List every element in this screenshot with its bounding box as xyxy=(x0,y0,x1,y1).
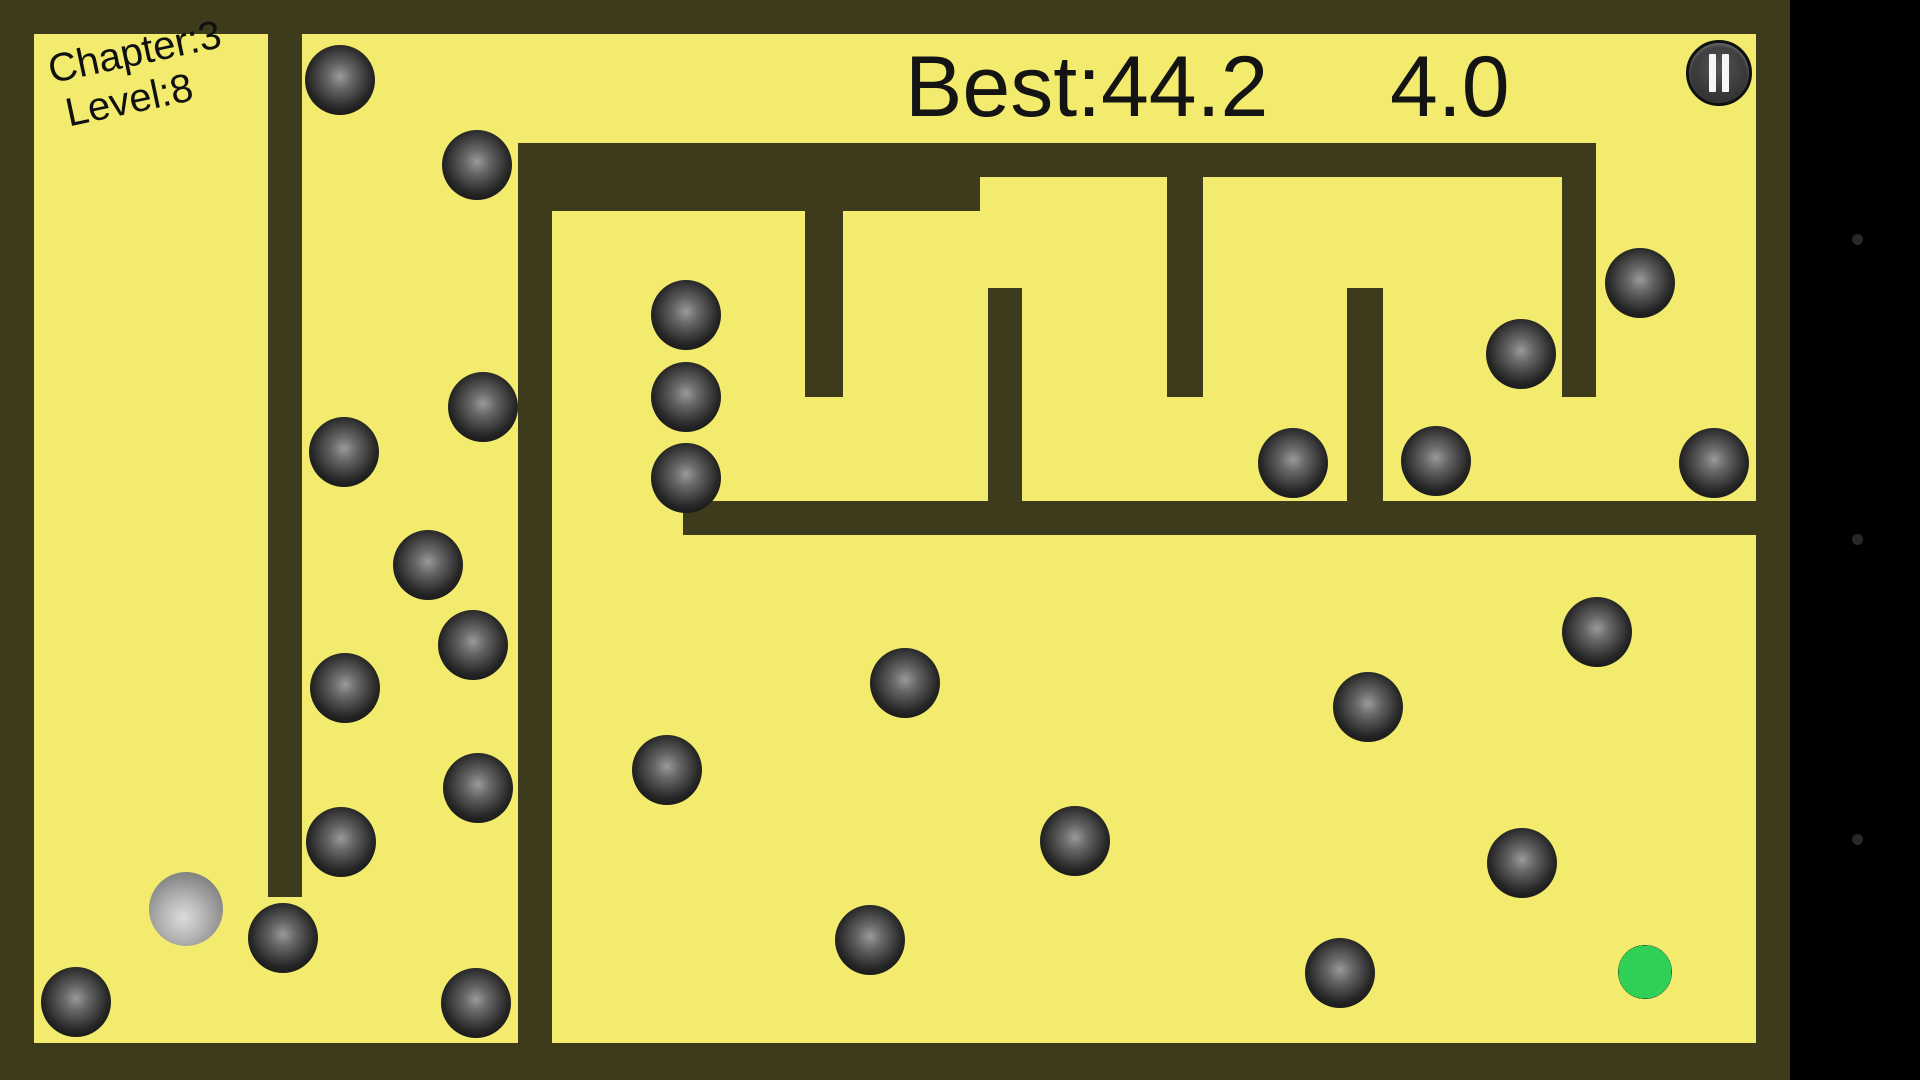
obstacle-ball xyxy=(442,130,512,200)
wall-top-horizontal xyxy=(518,143,1596,177)
obstacle-ball xyxy=(1562,597,1632,667)
maze-field xyxy=(0,0,1790,1080)
border-left xyxy=(0,0,34,1080)
tooth-hanging-2 xyxy=(1167,177,1203,397)
wall-middle-horizontal xyxy=(683,501,1756,535)
player-ball xyxy=(149,872,223,946)
tooth-hanging-1 xyxy=(805,211,843,397)
obstacle-ball xyxy=(1486,319,1556,389)
border-right xyxy=(1756,0,1790,1080)
obstacle-ball xyxy=(438,610,508,680)
obstacle-ball xyxy=(1333,672,1403,742)
obstacle-ball xyxy=(306,807,376,877)
best-score-label: Best:44.2 xyxy=(905,44,1268,130)
android-nav-dot[interactable] xyxy=(1852,534,1863,545)
wall-vertical-main xyxy=(518,143,552,1043)
goal-hole xyxy=(1618,945,1672,999)
obstacle-ball xyxy=(448,372,518,442)
post-rising-1 xyxy=(988,288,1022,501)
obstacle-ball xyxy=(309,417,379,487)
android-nav-dot[interactable] xyxy=(1852,834,1863,845)
border-bottom xyxy=(0,1043,1790,1080)
pause-icon xyxy=(1709,54,1716,92)
wall-second-horizontal xyxy=(552,177,980,211)
post-rising-2 xyxy=(1347,288,1383,501)
obstacle-ball xyxy=(1401,426,1471,496)
letterbox-right xyxy=(1790,0,1920,1080)
obstacle-ball xyxy=(1605,248,1675,318)
obstacle-ball xyxy=(248,903,318,973)
obstacle-ball xyxy=(1487,828,1557,898)
wall-vertical-left xyxy=(268,34,302,897)
obstacle-ball xyxy=(632,735,702,805)
obstacle-ball xyxy=(1258,428,1328,498)
obstacle-ball xyxy=(41,967,111,1037)
timer-label: 4.0 xyxy=(1390,44,1510,130)
obstacle-ball xyxy=(651,443,721,513)
obstacle-ball xyxy=(1679,428,1749,498)
border-top xyxy=(0,0,1790,34)
obstacle-ball xyxy=(651,362,721,432)
obstacle-ball xyxy=(393,530,463,600)
android-nav-dot[interactable] xyxy=(1852,234,1863,245)
obstacle-ball xyxy=(651,280,721,350)
obstacle-ball xyxy=(1040,806,1110,876)
obstacle-ball xyxy=(305,45,375,115)
pause-icon xyxy=(1722,54,1729,92)
wall-right-tooth xyxy=(1562,177,1596,397)
obstacle-ball xyxy=(1305,938,1375,1008)
game-screen: Chapter:3 Level:8 Best:44.2 4.0 xyxy=(0,0,1920,1080)
obstacle-ball xyxy=(443,753,513,823)
obstacle-ball xyxy=(441,968,511,1038)
obstacle-ball xyxy=(310,653,380,723)
obstacle-ball xyxy=(835,905,905,975)
obstacle-ball xyxy=(870,648,940,718)
pause-button[interactable] xyxy=(1686,40,1752,106)
